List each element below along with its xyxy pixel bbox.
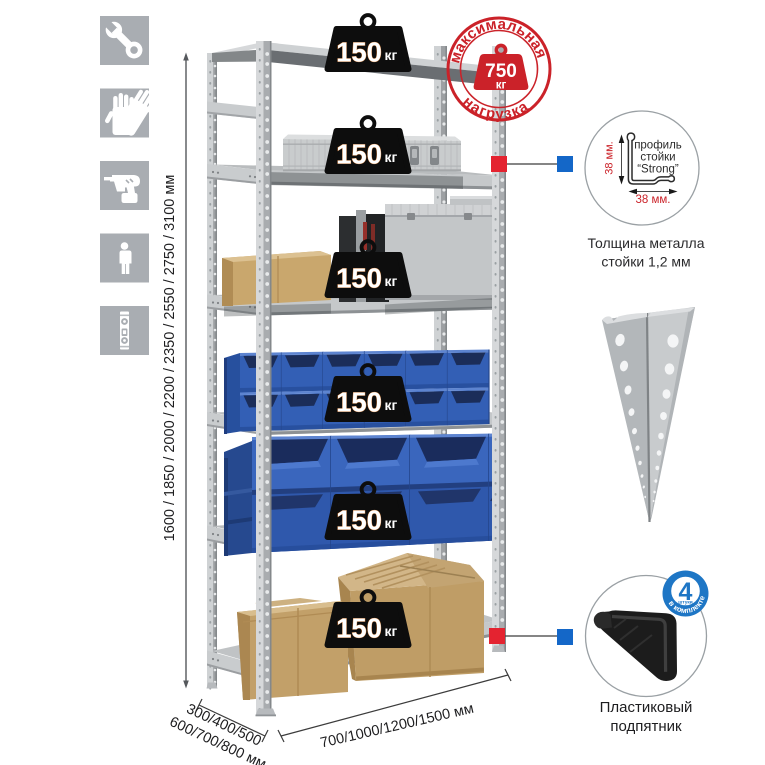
svg-text:кг: кг [496,80,507,92]
svg-text:стойки: стойки [640,152,675,164]
svg-text:штуки: штуки [678,601,693,606]
svg-text:38 мм.: 38 мм. [636,194,671,206]
svg-text:стойки 1,2 мм: стойки 1,2 мм [601,254,690,270]
svg-text:Пластиковый: Пластиковый [600,699,693,716]
svg-text:38 мм.: 38 мм. [604,141,616,174]
svg-text:Толщина металла: Толщина металла [588,235,705,251]
svg-text:подпятник: подпятник [610,718,682,735]
svg-text:профиль: профиль [634,140,682,152]
svg-text:“Strong”: “Strong” [637,164,679,176]
svg-text:1600 / 1850 / 2000 / 2200 / 23: 1600 / 1850 / 2000 / 2200 / 2350 / 2550 … [162,175,178,542]
